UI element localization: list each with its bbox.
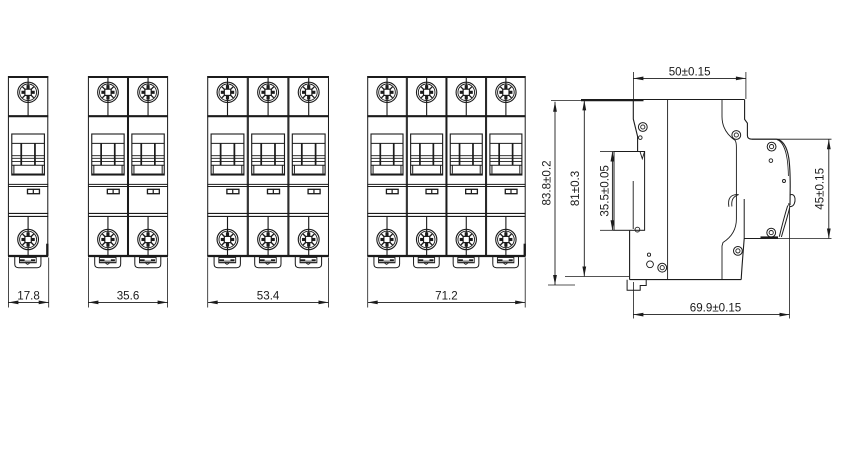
svg-text:35.5±0.05: 35.5±0.05	[599, 165, 612, 217]
svg-text:53.4: 53.4	[257, 290, 280, 303]
svg-text:17.8: 17.8	[17, 290, 40, 303]
svg-text:50±0.15: 50±0.15	[669, 66, 711, 79]
svg-text:83.8±0.2: 83.8±0.2	[540, 160, 553, 205]
svg-text:35.6: 35.6	[117, 290, 140, 303]
svg-text:69.9±0.15: 69.9±0.15	[690, 302, 742, 315]
svg-text:81±0.3: 81±0.3	[569, 171, 582, 206]
svg-text:45±0.15: 45±0.15	[814, 168, 827, 210]
svg-text:71.2: 71.2	[435, 290, 458, 303]
